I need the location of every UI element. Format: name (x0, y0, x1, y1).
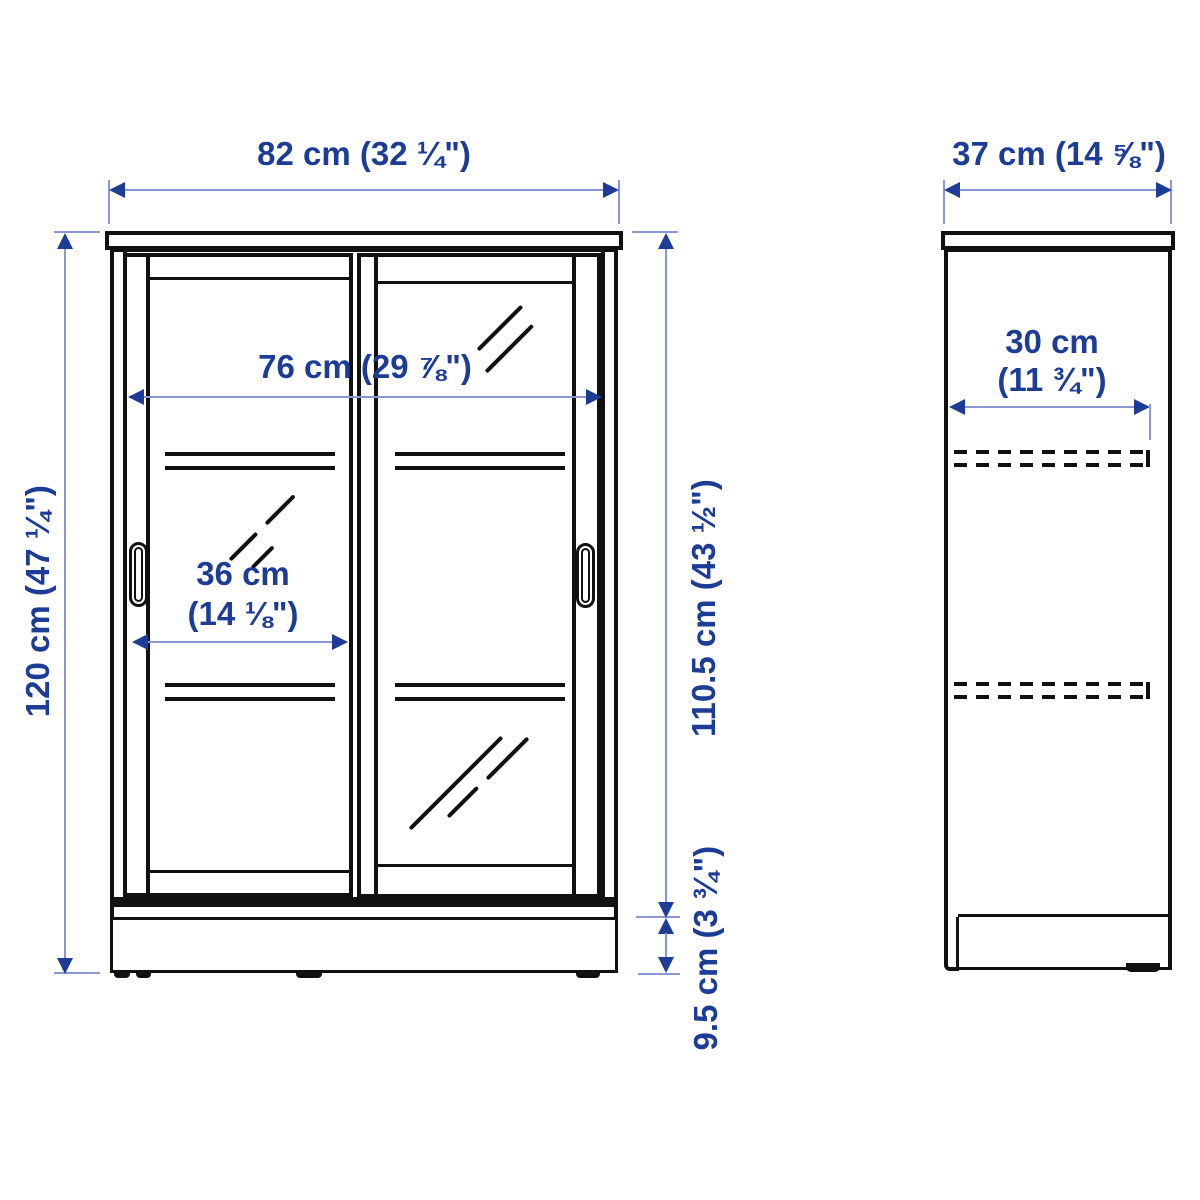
arrowhead-left-icon (109, 182, 125, 198)
arrowhead-left-icon (944, 182, 960, 198)
shelf-depth-dimension-label-line1: 30 cm (952, 324, 1152, 360)
cabinet-foot (296, 970, 322, 978)
side-top-panel (941, 231, 1175, 250)
arrowhead-up-icon (658, 918, 674, 934)
arrowhead-down-icon (57, 958, 73, 974)
inner-height-dimension-line (665, 248, 667, 906)
shelf-line (165, 452, 335, 456)
dashed-shelf-line (954, 463, 1150, 467)
cabinet-foot (576, 970, 600, 978)
door-width-dimension-label-line2: (14 ⅛") (133, 596, 353, 632)
shelf-line (165, 466, 335, 470)
door-width-dimension-line (146, 641, 336, 643)
shelf-line (395, 683, 565, 687)
cabinet-foot (136, 970, 151, 978)
inner-width-dimension-line (142, 396, 588, 398)
shelf-depth-dimension-line (963, 406, 1136, 408)
left-door-bottom-rail-line (150, 870, 349, 873)
arrowhead-right-icon (1156, 182, 1172, 198)
top-panel-underline (110, 249, 618, 252)
dashed-shelf-line (954, 695, 1150, 699)
door-handle-right-inner (581, 548, 590, 603)
door-handle-left-inner (134, 547, 143, 602)
arrowhead-right-icon (1134, 399, 1150, 415)
side-back-edge-lower (1168, 917, 1172, 969)
arrowhead-down-icon (658, 902, 674, 918)
extension-line (1149, 404, 1151, 440)
shelf-line (395, 697, 565, 701)
tick-line (638, 973, 680, 975)
inner-width-dimension-label: 76 cm (29 ⅞") (115, 349, 615, 385)
arrowhead-right-icon (332, 634, 348, 650)
shelf-line (165, 697, 335, 701)
dashed-shelf-line (954, 682, 1150, 686)
depth-dimension-line (958, 189, 1158, 191)
right-door-top-rail-line (378, 281, 572, 284)
shelf-line (165, 683, 335, 687)
height-dimension-label: 120 cm (47 ¼") (20, 401, 56, 801)
width-dimension-label: 82 cm (32 ¼") (114, 136, 614, 172)
dashed-shelf-end-bracket (1146, 682, 1150, 699)
dashed-shelf-end-bracket (1146, 450, 1150, 467)
arrowhead-left-icon (132, 634, 148, 650)
height-dimension-line (64, 248, 66, 960)
arrowhead-right-icon (603, 182, 619, 198)
shelf-line (395, 466, 565, 470)
base-height-dimension-line (665, 933, 667, 959)
arrowhead-left-icon (128, 389, 144, 405)
diagram-canvas: 82 cm (32 ¼") 76 cm (29 ⅞") 36 cm (14 ⅛"… (0, 0, 1200, 1200)
shelf-line (395, 452, 565, 456)
cabinet-foot (1126, 963, 1160, 972)
door-width-dimension-label-line1: 36 cm (143, 556, 343, 592)
shelf-depth-dimension-label-line2: (11 ¾") (942, 362, 1162, 398)
arrowhead-right-icon (586, 389, 602, 405)
side-front-leg (944, 917, 959, 971)
width-dimension-line (123, 189, 605, 191)
left-door-top-rail-line (150, 277, 349, 280)
base-height-dimension-label: 9.5 cm (3 ¾") (688, 748, 724, 1148)
arrowhead-left-icon (949, 399, 965, 415)
arrowhead-up-icon (658, 233, 674, 249)
right-door-bottom-rail-line (378, 864, 572, 867)
arrowhead-down-icon (658, 957, 674, 973)
side-back-edge (1168, 249, 1172, 917)
cabinet-foot (114, 970, 130, 978)
side-top-panel-underline (944, 249, 1172, 252)
dashed-shelf-line (954, 450, 1150, 454)
side-front-edge (944, 249, 948, 917)
cabinet-bottom-rail (114, 897, 614, 907)
cabinet-plinth (110, 917, 618, 973)
cabinet-top-panel (105, 231, 623, 250)
door-handle-right (576, 543, 595, 608)
arrowhead-up-icon (57, 233, 73, 249)
cabinet-left-wall (110, 249, 114, 917)
depth-dimension-label: 37 cm (14 ⅝") (930, 136, 1188, 172)
side-plinth-top-line (958, 914, 1170, 917)
